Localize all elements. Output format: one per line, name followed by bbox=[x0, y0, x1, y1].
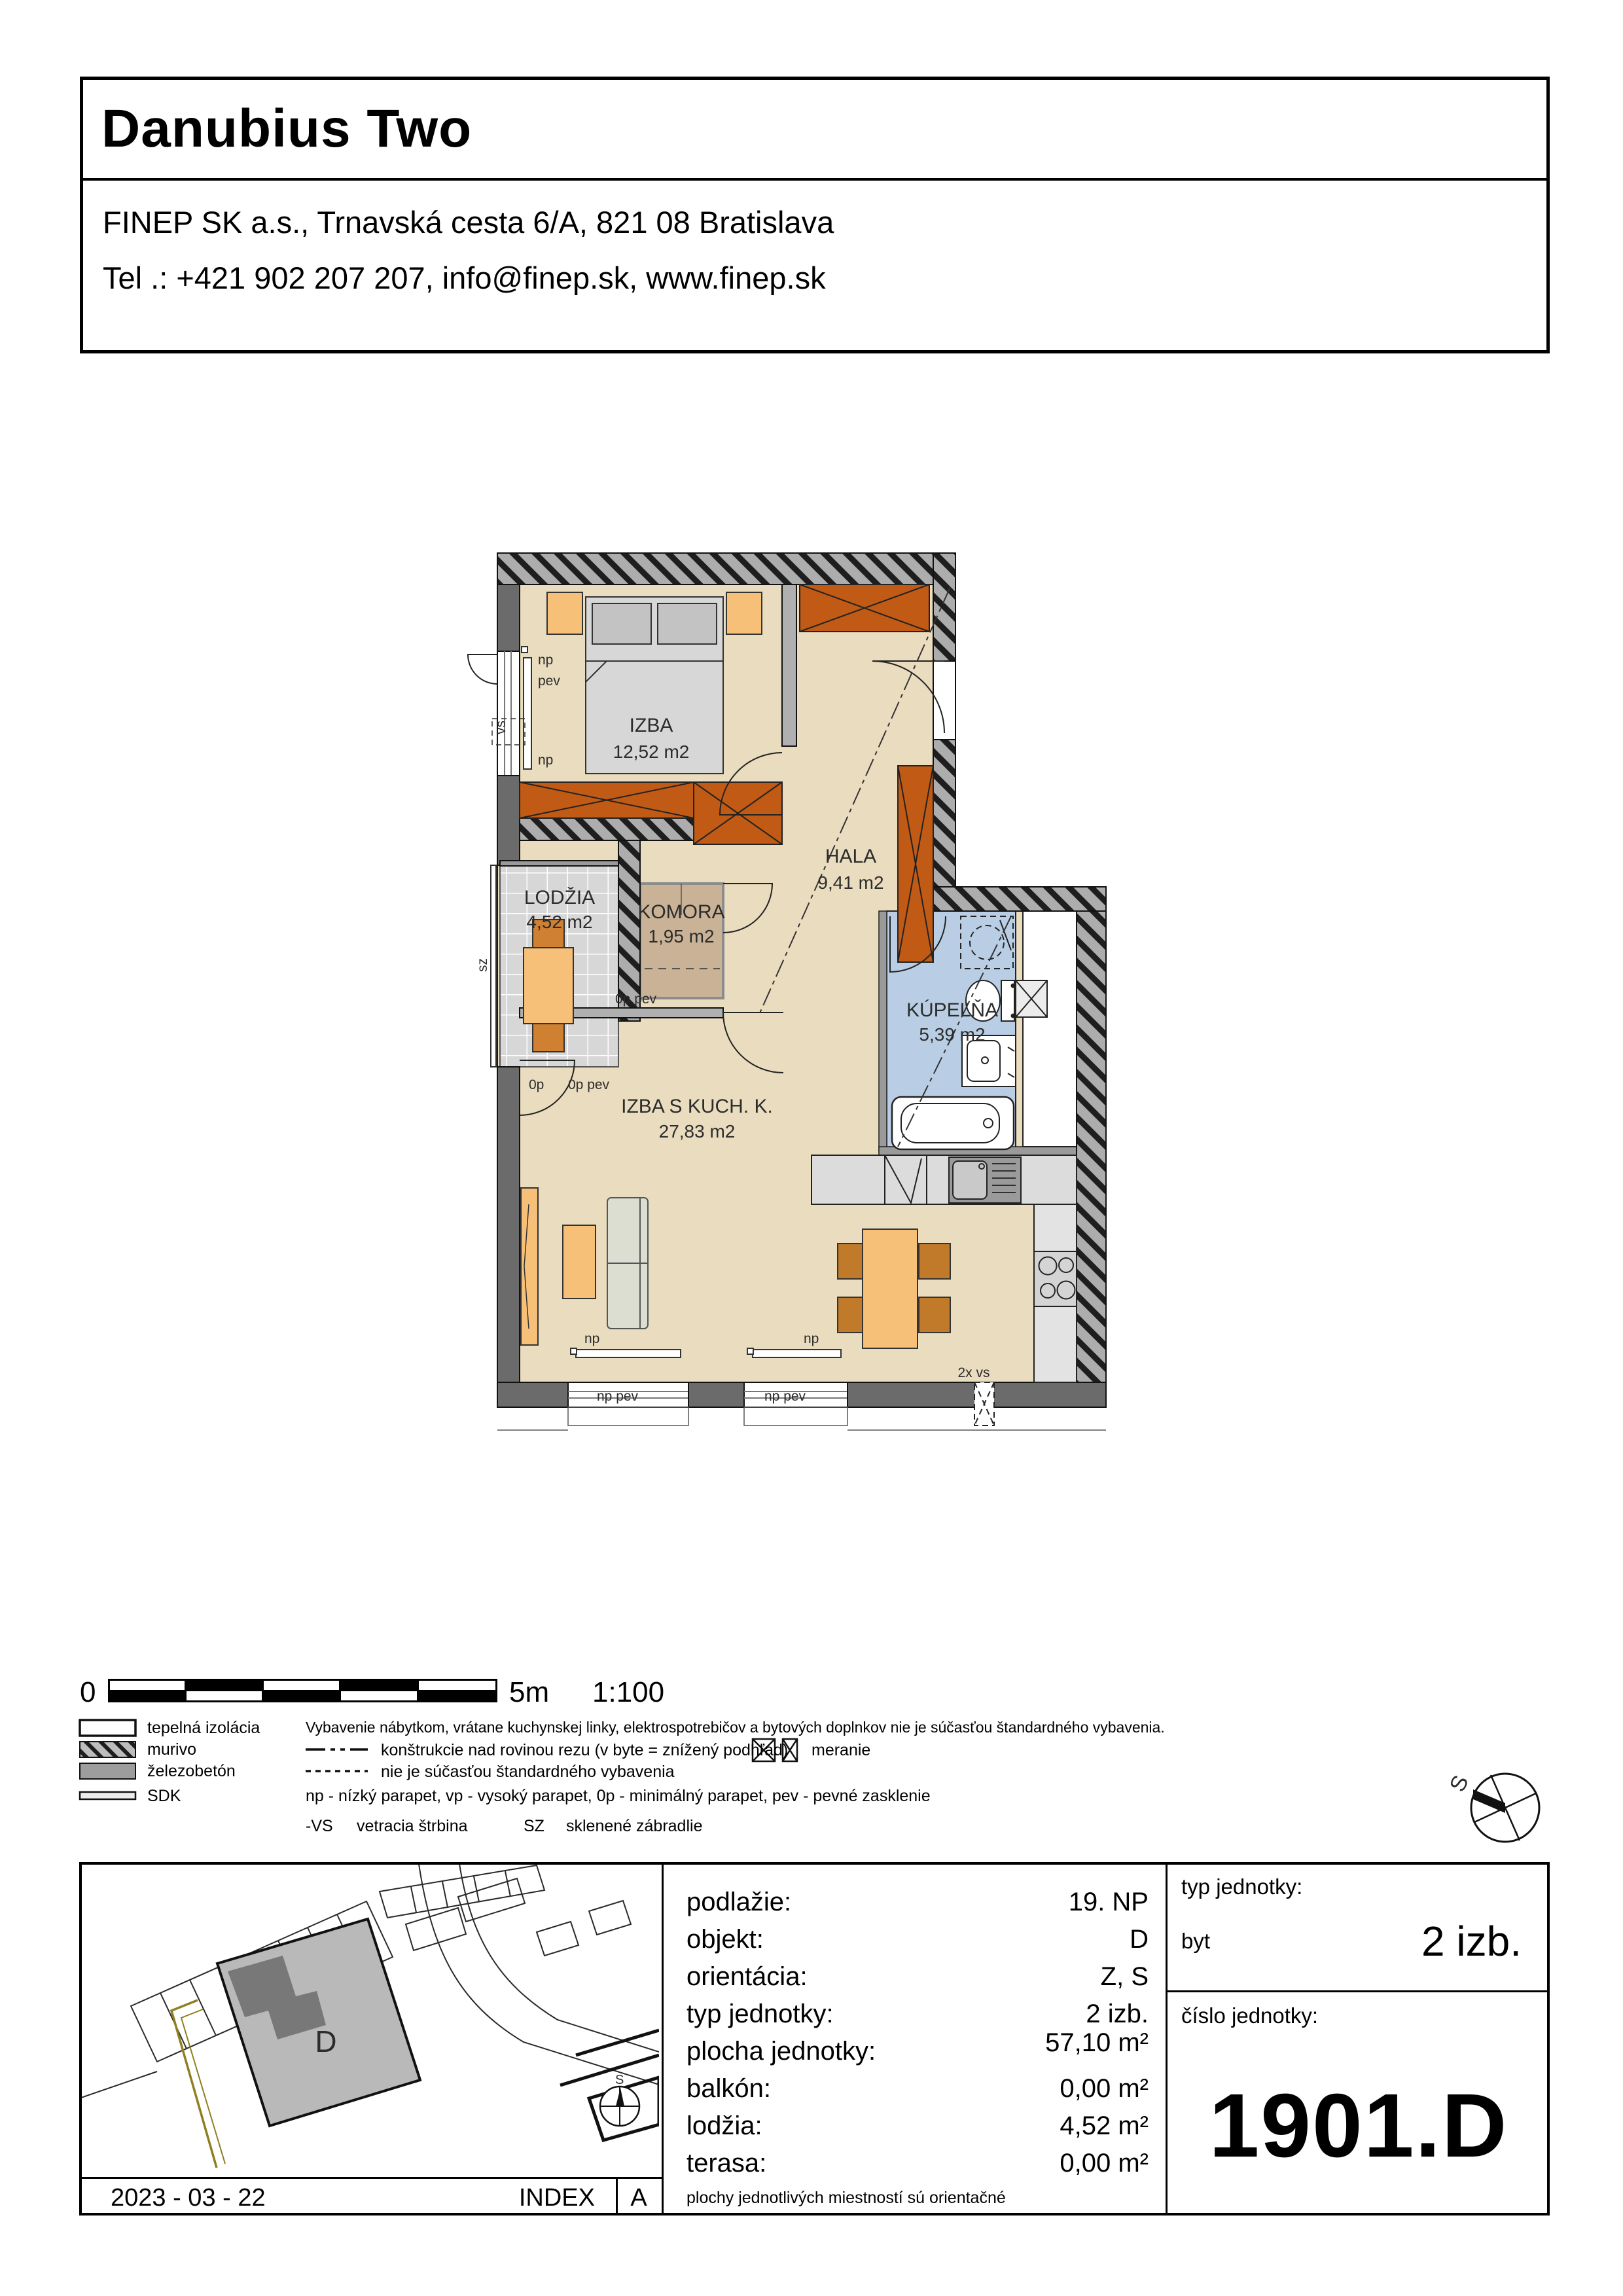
room-label-obyvacka: IZBA S KUCH. K. bbox=[621, 1096, 773, 1117]
title-block: 2023 - 03 - 22 INDEX A podlažie:19. NP o… bbox=[79, 1862, 1550, 2215]
info-table-note: plochy jednotlivých miestností sú orient… bbox=[687, 2189, 1006, 2208]
index-label: INDEX bbox=[448, 2184, 595, 2212]
unit-type-label: typ jednotky: bbox=[1181, 1874, 1302, 1899]
ann-np: np bbox=[538, 653, 553, 668]
legend-note-equipment: Vybavenie nábytkom, vrátane kuchynskej l… bbox=[306, 1719, 1165, 1736]
legend-swatch-sdk bbox=[80, 1792, 135, 1799]
shaft bbox=[1023, 911, 1077, 1147]
room-label-izba: IZBA bbox=[630, 715, 673, 736]
unit-number-label: číslo jednotky: bbox=[1181, 2003, 1318, 2028]
dining-table bbox=[863, 1229, 918, 1348]
exterior-sills bbox=[497, 1407, 1106, 1430]
scale-bar: 0 5m 1:100 bbox=[80, 1676, 664, 1708]
floor-plan: IZBA 12,52 m2 HALA 9,41 m2 LODŽIA 4,52 m… bbox=[468, 553, 1106, 1430]
legend-label-masonry: murivo bbox=[147, 1740, 196, 1759]
scale-ratio: 1:100 bbox=[592, 1676, 664, 1708]
ann-np-pev: np pev bbox=[764, 1389, 806, 1404]
room-label-komora: KOMORA bbox=[637, 901, 724, 923]
legend-note-dashdot: konštrukcie nad rovinou rezu (v byte = z… bbox=[381, 1741, 788, 1760]
ann-op: 0p bbox=[529, 1077, 544, 1092]
pillow bbox=[592, 603, 651, 644]
ann-np-pev: np pev bbox=[597, 1389, 639, 1404]
nightstand bbox=[547, 592, 582, 634]
dining-chair bbox=[919, 1244, 950, 1279]
ann-np: np bbox=[584, 1331, 599, 1346]
room-area-obyvacka: 27,83 m2 bbox=[659, 1121, 736, 1141]
ann-op-pev: 0p pev bbox=[568, 1077, 610, 1092]
legend-sz-label: sklenené zábradlie bbox=[566, 1817, 702, 1836]
unit-type-value: 2 izb. bbox=[1299, 1917, 1522, 1965]
radiator bbox=[753, 1350, 841, 1357]
legend-swatch-masonry bbox=[80, 1742, 135, 1757]
room-area-lodzia: 4,52 m2 bbox=[526, 912, 592, 932]
date: 2023 - 03 - 22 bbox=[111, 2184, 266, 2212]
room-area-hala: 9,41 m2 bbox=[817, 872, 883, 893]
ann-sz: sz bbox=[475, 958, 490, 972]
legend-sz-abbr: SZ bbox=[524, 1817, 544, 1836]
tv-bench bbox=[521, 1188, 538, 1345]
radiator bbox=[576, 1350, 681, 1357]
balcony-chair bbox=[533, 1022, 564, 1052]
ann-pev: pev bbox=[538, 673, 560, 689]
vs-shaft-symbol bbox=[974, 1382, 994, 1426]
room-label-hala: HALA bbox=[825, 846, 876, 867]
index-value: A bbox=[618, 2184, 660, 2212]
legend-label-concrete: železobetón bbox=[147, 1762, 236, 1781]
north-compass: S bbox=[1445, 1772, 1539, 1842]
room-area-kupelna: 5,39 m2 bbox=[919, 1024, 985, 1045]
legend-note-meranie: meranie bbox=[811, 1741, 870, 1760]
header-box: Danubius Two FINEP SK a.s., Trnavská ces… bbox=[80, 77, 1550, 353]
kitchen-counter bbox=[811, 1155, 1077, 1204]
compass-north-label: S bbox=[1445, 1772, 1474, 1796]
unit-type-category: byt bbox=[1181, 1929, 1210, 1954]
legend-note-parapet: np - nízký parapet, vp - vysoký parapet,… bbox=[306, 1787, 931, 1806]
legend-swatch-insulation bbox=[80, 1720, 135, 1736]
coffee-table bbox=[563, 1225, 596, 1299]
legend-vs-label: vetracia štrbina bbox=[357, 1817, 468, 1836]
scale-max: 5m bbox=[509, 1676, 549, 1708]
nightstand bbox=[726, 592, 762, 634]
room-label-lodzia: LODŽIA bbox=[524, 887, 595, 908]
dining-chair bbox=[919, 1297, 950, 1333]
room-label-kupelna: KÚPEĽŇA bbox=[906, 999, 998, 1021]
unit-number: 1901.D bbox=[1171, 2074, 1546, 2178]
ann-op-pev: 0p pev bbox=[615, 992, 657, 1007]
company-contacts: Tel .: +421 902 207 207, info@finep.sk, … bbox=[103, 260, 826, 296]
floorplan-sheet: { "header": { "title": "Danubius Two", "… bbox=[0, 0, 1623, 2296]
room-area-komora: 1,95 m2 bbox=[648, 926, 714, 946]
radiator bbox=[524, 658, 531, 769]
legend-label-insulation: tepelná izolácia bbox=[147, 1719, 260, 1738]
page-title: Danubius Two bbox=[101, 98, 472, 160]
ann-np: np bbox=[538, 753, 553, 768]
ann-np: np bbox=[804, 1331, 819, 1346]
scale-zero: 0 bbox=[80, 1676, 96, 1708]
pillow bbox=[658, 603, 717, 644]
ann-vs: vs bbox=[493, 721, 508, 734]
legend-note-dashed: nie je súčasťou štandardného vybavenia bbox=[381, 1763, 675, 1782]
room-area-izba: 12,52 m2 bbox=[613, 742, 690, 762]
meranie-box bbox=[1016, 980, 1047, 1017]
ann-2x-vs: 2x vs bbox=[957, 1365, 990, 1380]
legend-swatch-concrete bbox=[80, 1763, 135, 1779]
legend-vs-abbr: -VS bbox=[306, 1817, 333, 1836]
legend-label-sdk: SDK bbox=[147, 1787, 181, 1806]
company-address: FINEP SK a.s., Trnavská cesta 6/A, 821 0… bbox=[103, 204, 834, 240]
balcony-table bbox=[524, 948, 573, 1024]
